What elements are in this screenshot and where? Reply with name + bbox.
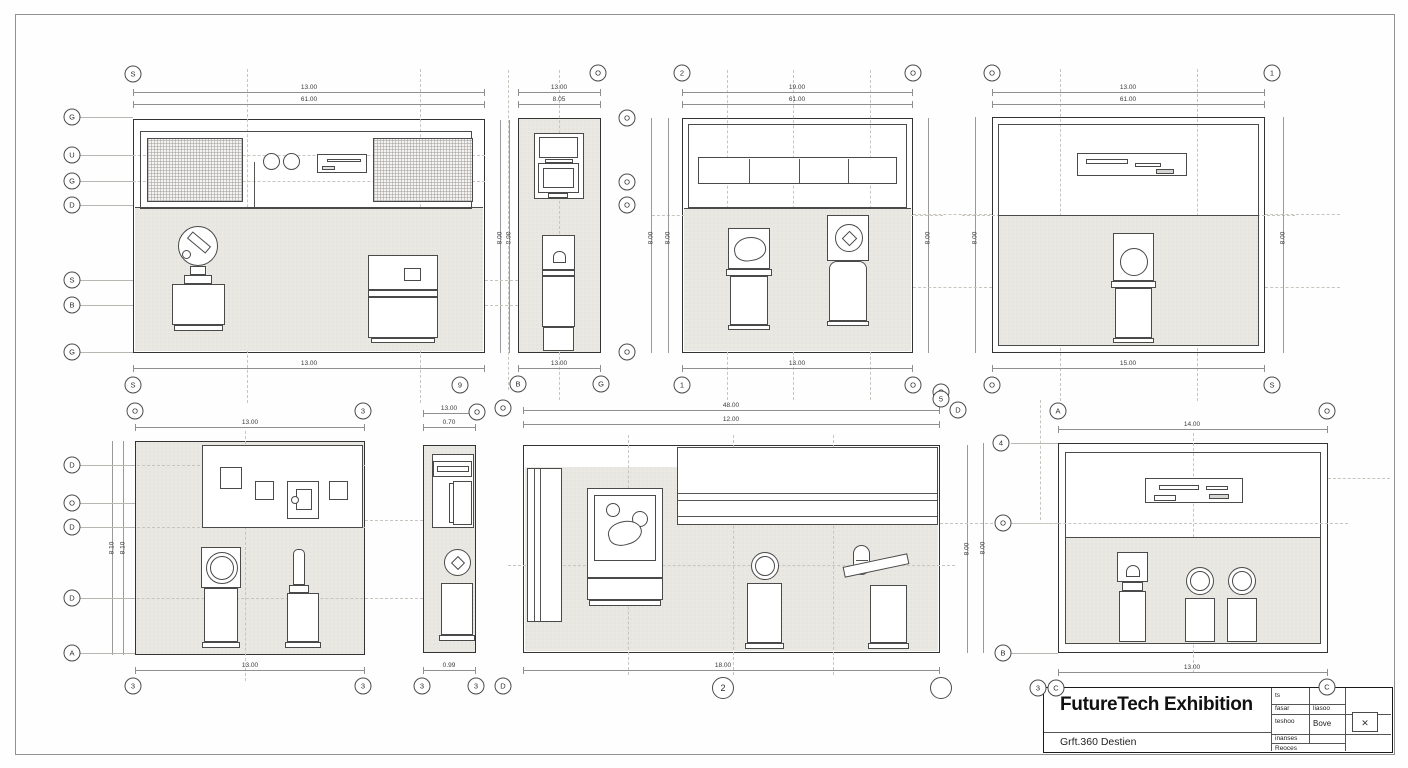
- mesh-screen-left: [147, 138, 243, 202]
- art-frame: [255, 481, 274, 500]
- grid-bubble: 3: [414, 678, 431, 695]
- dome-case-base: [1119, 591, 1146, 642]
- window-mullion: [848, 159, 849, 183]
- porthole-base: [204, 588, 238, 642]
- grid-bubble: B: [995, 645, 1012, 662]
- exhibit-rock: [732, 234, 768, 263]
- grid-bubble: G: [64, 173, 81, 190]
- tb-vline: [1345, 688, 1346, 751]
- leader-line: [80, 503, 135, 504]
- dim-text-v: 8.00: [665, 232, 672, 245]
- gap-gridline: [1265, 214, 1340, 215]
- stamp-box: ✕: [1352, 712, 1378, 732]
- grid-bubble: O: [619, 344, 636, 361]
- grid-bubble: C: [1048, 680, 1065, 697]
- dim-text-v: 8.10: [109, 542, 116, 555]
- grid-bubble: D: [64, 197, 81, 214]
- dim-line: [523, 424, 940, 425]
- signage-board: [1145, 478, 1243, 503]
- ring2-base: [1227, 598, 1257, 642]
- dim-text: 13.00: [789, 360, 805, 367]
- pedestal-b-glass: [827, 215, 869, 261]
- pedestal-right: [870, 585, 907, 643]
- dim-text: 13.00: [242, 662, 258, 669]
- grid-bubble: D: [495, 678, 512, 695]
- robot-arm-sphere: [178, 226, 218, 266]
- screen-button: [322, 166, 335, 170]
- tb-cell: Bove: [1313, 719, 1331, 728]
- grid-bubble: B: [510, 376, 527, 393]
- bottle-plinth: [285, 642, 321, 648]
- dim-text-v: 8.00: [925, 232, 932, 245]
- monitor-screen: [543, 168, 574, 188]
- dim-text: 13.00: [551, 360, 567, 367]
- exhibit-ring: [835, 224, 863, 252]
- sign-slot: [437, 466, 469, 472]
- grid-bubble: O: [1319, 403, 1336, 420]
- pedestal-a-base: [730, 276, 768, 325]
- robot-arm: [187, 231, 211, 253]
- dim-text: 13.00: [551, 84, 567, 91]
- leader-line: [80, 598, 135, 599]
- grid-bubble: O: [127, 403, 144, 420]
- canopy-line: [678, 500, 937, 501]
- dim-line: [1058, 672, 1328, 673]
- sign-tag: [1156, 169, 1174, 174]
- grid-bubble: O: [619, 110, 636, 127]
- gap-centerline: [1040, 400, 1041, 520]
- big-display-case: [587, 488, 663, 578]
- window-mullion: [749, 159, 750, 183]
- grid-bubble: S: [64, 272, 81, 289]
- dim-line: [135, 427, 365, 428]
- pedestal-a-plinth: [728, 325, 770, 330]
- pillar-line: [540, 469, 541, 621]
- dim-text: 14.00: [1184, 421, 1200, 428]
- pedestal-plinth: [1113, 338, 1154, 343]
- gap-gridline: [1265, 287, 1340, 288]
- mesh-screen-right: [373, 138, 473, 202]
- grid-bubble: 1: [1264, 65, 1281, 82]
- long-canopy: [677, 447, 938, 525]
- leader-line: [80, 527, 135, 528]
- porthole-case: [201, 547, 241, 588]
- display-case-shelf: [368, 290, 438, 297]
- elevation-panel-4: [992, 117, 1265, 353]
- screen-slot: [327, 159, 361, 162]
- dim-text: 8.05: [553, 96, 566, 103]
- dim-text: 13.00: [301, 360, 317, 367]
- tb-cell: fasar: [1275, 705, 1289, 712]
- porthole-ring-inner: [210, 556, 234, 580]
- case-glass: [542, 235, 575, 270]
- grid-bubble: D: [64, 590, 81, 607]
- grid-bubble: 3: [355, 403, 372, 420]
- art-frame: [329, 481, 348, 500]
- grid-bubble: O: [495, 400, 512, 417]
- grid-bubble: D: [64, 519, 81, 536]
- pedestal-mid-plinth: [745, 643, 784, 649]
- dim-line: [133, 92, 485, 93]
- elevation-panel-2: [518, 118, 601, 353]
- dim-line: [992, 104, 1265, 105]
- ring-diamond: [842, 231, 858, 247]
- leader-line: [80, 280, 133, 281]
- dim-line: [682, 368, 913, 369]
- dim-line: [423, 427, 476, 428]
- dome-case-neck: [1122, 582, 1143, 591]
- window-mullion: [799, 159, 800, 183]
- grid-bubble: O: [984, 377, 1001, 394]
- dim-line: [518, 104, 601, 105]
- grid-bubble: O: [469, 404, 486, 421]
- display-case-base: [368, 297, 438, 338]
- gap-gridline: [485, 280, 518, 281]
- dim-text-v: 8.00: [1280, 232, 1287, 245]
- dim-text-v: 8.00: [497, 232, 504, 245]
- leader-line: [1011, 653, 1058, 654]
- dim-text: 18.00: [715, 662, 731, 669]
- dim-text-v: 8.00: [506, 232, 513, 245]
- display-case-plinth: [371, 338, 435, 343]
- pedestal-shelf: [1111, 281, 1156, 288]
- device-dial: [291, 496, 299, 504]
- dim-text-v: 8.10: [120, 542, 127, 555]
- dim-line: [523, 410, 940, 411]
- grid-bubble: [930, 677, 952, 699]
- conduit-line: [254, 162, 255, 207]
- leader-line: [80, 205, 133, 206]
- robot-neck: [190, 266, 206, 275]
- porthole-plinth: [202, 642, 240, 648]
- pedestal-base: [1115, 288, 1152, 338]
- header-sign: [433, 461, 472, 477]
- canopy-line: [678, 493, 937, 494]
- pedestal-a-glass: [728, 228, 770, 269]
- grid-bubble: G: [64, 109, 81, 126]
- grid-bubble: B: [64, 297, 81, 314]
- dim-line: [133, 104, 485, 105]
- elevation-panel-3: [682, 118, 913, 353]
- dim-text: 61.00: [1120, 96, 1136, 103]
- round-fixture: [283, 153, 300, 170]
- grid-bubble: S: [125, 377, 142, 394]
- dim-text: 0.99: [443, 662, 456, 669]
- dim-text: 48.00: [723, 402, 739, 409]
- bottle-neck: [293, 549, 305, 585]
- bottle-collar: [289, 585, 309, 593]
- ring-inner: [755, 556, 775, 576]
- sign-tag: [1209, 494, 1229, 499]
- sign-slot: [1159, 485, 1199, 490]
- ring-exhibit-1: [1186, 567, 1214, 595]
- dim-text: 13.00: [301, 84, 317, 91]
- framed-device: [287, 481, 319, 519]
- dim-text: 13.00: [1184, 664, 1200, 671]
- elevation-panel-5: [135, 441, 365, 655]
- exhibit-sphere: [1120, 248, 1148, 276]
- gap-gridline: [1328, 478, 1390, 479]
- case-plinth: [543, 327, 574, 351]
- grid-bubble: O: [590, 65, 607, 82]
- robot-pedestal-base: [174, 325, 223, 331]
- dome-case-glass: [1117, 552, 1148, 582]
- grid-bubble: O: [905, 377, 922, 394]
- dim-text: 19.00: [789, 84, 805, 91]
- grid-bubble: 3: [125, 678, 142, 695]
- robot-pedestal: [172, 284, 225, 325]
- sign-slot: [1086, 159, 1128, 164]
- pillar-line: [534, 469, 535, 621]
- tb-cell: liasoo: [1313, 705, 1330, 712]
- grid-bubble: O: [64, 495, 81, 512]
- ring-inner: [1232, 571, 1252, 591]
- dim-line: [135, 670, 365, 671]
- dim-text: 61.00: [789, 96, 805, 103]
- ring-exhibit: [751, 552, 779, 580]
- dim-text-v: 8.00: [980, 542, 987, 555]
- tb-hline: [1271, 743, 1345, 744]
- window-band: [698, 157, 897, 184]
- dim-line: [423, 670, 476, 671]
- sign-slot: [1206, 486, 1228, 490]
- dim-line: [992, 368, 1265, 369]
- gap-gridline: [365, 520, 423, 521]
- grid-bubble: D: [64, 457, 81, 474]
- grid-bubble: 5: [933, 391, 950, 408]
- elevation-panel-7: [523, 445, 940, 653]
- dim-text-v: 8.00: [964, 543, 971, 556]
- leader-line: [80, 305, 133, 306]
- dim-text: 13.00: [242, 419, 258, 426]
- title-divider: [1044, 732, 1271, 733]
- grid-bubble: O: [905, 65, 922, 82]
- grid-bubble: 2: [712, 677, 734, 699]
- grid-bubble: 1: [674, 377, 691, 394]
- grid-bubble: C: [1319, 679, 1336, 696]
- dim-text: 61.00: [301, 96, 317, 103]
- stamp-mark-icon: ✕: [1361, 718, 1369, 728]
- leader-line: [80, 181, 133, 182]
- grid-bubble: G: [593, 376, 610, 393]
- pedestal-b-base: [829, 261, 867, 321]
- grid-bubble: 3: [355, 678, 372, 695]
- grid-bubble: 4: [993, 435, 1010, 452]
- monitor: [538, 163, 579, 193]
- signage-board: [1077, 153, 1187, 176]
- gap-gridline: [913, 287, 992, 288]
- grid-bubble: G: [64, 344, 81, 361]
- leader-line: [80, 465, 135, 466]
- pedestal-glass: [1113, 233, 1154, 281]
- art-frame: [220, 467, 242, 489]
- panel3-wall-fill: [684, 208, 911, 351]
- tb-cell: ts: [1275, 692, 1280, 699]
- pedestal-right-plinth: [868, 643, 909, 649]
- canopy-line: [678, 516, 937, 517]
- title-block: FutureTech Exhibition Grft.360 Destien t…: [1043, 687, 1393, 753]
- dim-text-v: 8.00: [648, 232, 655, 245]
- grid-bubble: 3: [1030, 680, 1047, 697]
- ring1-base: [1185, 598, 1215, 642]
- wall-pillar: [527, 468, 562, 622]
- wall-screen: [539, 137, 578, 158]
- elevation-panel-1: [133, 119, 485, 353]
- ring-diamond: [451, 556, 465, 570]
- monitor-stand: [548, 193, 568, 198]
- leader-line: [80, 352, 133, 353]
- grid-bubble: 3: [468, 678, 485, 695]
- dim-text: 12.00: [723, 416, 739, 423]
- robot-collar: [184, 275, 212, 284]
- gap-gridline: [913, 214, 992, 215]
- ring-exhibit: [444, 549, 471, 576]
- grid-bubble: D: [950, 402, 967, 419]
- control-screen: [317, 154, 367, 173]
- case-base: [542, 276, 575, 327]
- sign-tag: [1154, 495, 1176, 501]
- dim-line: [523, 670, 940, 671]
- title-block-heading: FutureTech Exhibition: [1060, 694, 1253, 716]
- dim-line: [133, 368, 485, 369]
- pedestal: [441, 583, 473, 635]
- grid-bubble: O: [995, 515, 1012, 532]
- leader-line: [1011, 443, 1058, 444]
- exhibit-dome: [1126, 565, 1140, 577]
- dim-line: [518, 92, 601, 93]
- grid-bubble: 2: [674, 65, 691, 82]
- tb-cell: inanses: [1275, 735, 1297, 742]
- dim-text-v: 8.00: [972, 232, 979, 245]
- dim-text: 13.00: [1120, 84, 1136, 91]
- grid-bubble: S: [125, 66, 142, 83]
- grid-bubble: A: [64, 645, 81, 662]
- tb-vline: [1271, 688, 1272, 751]
- title-block-subtitle: Grft.360 Destien: [1060, 736, 1136, 748]
- display-case-glass: [368, 255, 438, 290]
- round-fixture: [263, 153, 280, 170]
- leader-line: [80, 653, 135, 654]
- dim-text: 13.00: [441, 405, 457, 412]
- ring-exhibit-2: [1228, 567, 1256, 595]
- ring-inner: [1190, 571, 1210, 591]
- pedestal-mid: [747, 583, 782, 643]
- bottle-pedestal: [287, 593, 319, 642]
- grid-bubble: S: [1264, 377, 1281, 394]
- dim-text: 15.00: [1120, 360, 1136, 367]
- sign-slot: [1135, 163, 1161, 167]
- grid-bubble: 9: [452, 377, 469, 394]
- gap-gridline: [485, 305, 518, 306]
- tb-cell: Reoces: [1275, 745, 1297, 752]
- tb-cell: teshoo: [1275, 718, 1295, 725]
- dim-line: [518, 368, 601, 369]
- dim-text: 0.70: [443, 419, 456, 426]
- dim-line: [682, 104, 913, 105]
- gap-gridline: [365, 598, 423, 599]
- exhibit-dome: [553, 251, 566, 263]
- exhibit-orb-small: [606, 503, 620, 517]
- dim-line: [1058, 429, 1328, 430]
- pedestal-plinth: [439, 635, 475, 641]
- dim-line: [682, 92, 913, 93]
- grid-bubble: A: [1050, 403, 1067, 420]
- elevation-panel-6: [423, 445, 476, 653]
- grid-bubble: O: [619, 197, 636, 214]
- grid-bubble: O: [984, 65, 1001, 82]
- pedestal-a-shelf: [726, 269, 772, 276]
- grid-bubble: O: [619, 174, 636, 191]
- gap-centerline: [508, 70, 509, 390]
- grid-bubble: U: [64, 147, 81, 164]
- dim-line: [992, 92, 1265, 93]
- elevation-panel-8: [1058, 443, 1328, 653]
- drawing-sheet: 13.00 61.00 13.00 8.00 13.00 8.05 13.00 …: [0, 0, 1408, 768]
- big-case-base: [587, 578, 663, 600]
- wall-panel: [453, 481, 472, 525]
- exhibit-cube: [404, 268, 421, 281]
- robot-joint: [182, 250, 191, 259]
- leader-line: [80, 155, 133, 156]
- pedestal-b-plinth: [827, 321, 869, 326]
- big-case-plinth: [589, 600, 661, 606]
- leader-line: [80, 117, 133, 118]
